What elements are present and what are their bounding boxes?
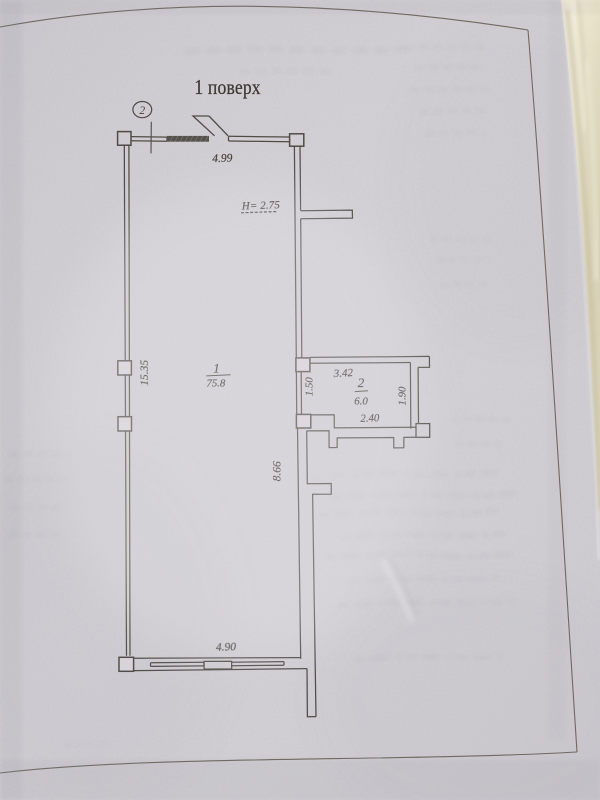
svg-text:1 поверх: 1 поверх: [194, 75, 260, 99]
svg-text:4.99: 4.99: [212, 152, 233, 165]
svg-text:2: 2: [139, 105, 145, 117]
